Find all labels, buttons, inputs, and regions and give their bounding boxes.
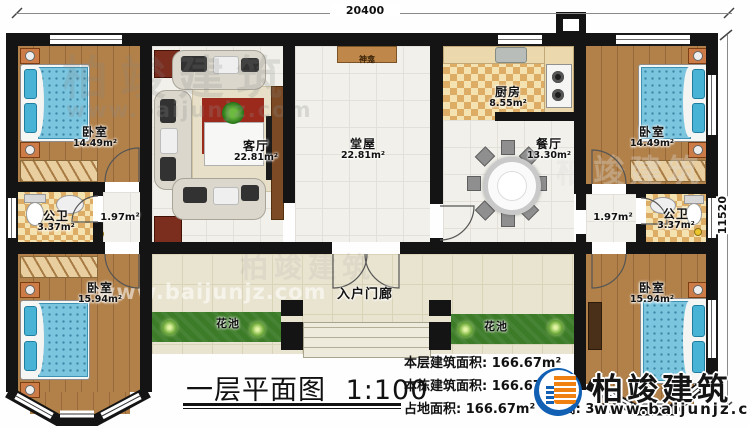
- dimension-ticks: [12, 8, 734, 412]
- plan-title-text: 一层平面图: [186, 375, 326, 406]
- bay-window-bottom-left: [8, 392, 148, 420]
- room-area: 22.81m²: [324, 151, 402, 162]
- room-area: 8.55m²: [478, 99, 538, 110]
- stat-label: 本栋建筑面积:: [404, 379, 487, 394]
- room-area: 22.81m²: [218, 153, 294, 164]
- room-area: 3.37m²: [642, 221, 710, 232]
- room-name: 花池: [200, 318, 256, 330]
- bathroom-left-label: 公卫 3.37m²: [22, 210, 90, 234]
- corridor-left-label: 1.97m²: [96, 212, 144, 223]
- dining-room-label: 餐厅 13.30m²: [516, 138, 582, 162]
- title-underline-thin: [183, 408, 401, 409]
- room-area: 15.94m²: [610, 295, 694, 306]
- room-area: 14.49m²: [56, 139, 134, 150]
- plan-title: 一层平面图 1:100: [186, 368, 406, 407]
- brand-logo-building-icon: [554, 374, 576, 404]
- room-area: 13.30m²: [516, 151, 582, 162]
- room-name: 入户门廊: [310, 288, 420, 303]
- bedroom-top-left-label: 卧室 14.49m²: [56, 126, 134, 150]
- flower-bed-left-label: 花池: [200, 318, 256, 330]
- door-arc: [440, 206, 474, 240]
- brand-logo-icon: [534, 368, 582, 416]
- brand-logo-building-icon-small: [546, 386, 554, 404]
- door-arc: [105, 148, 139, 182]
- stat-label: 占地面积:: [404, 402, 461, 417]
- porch-label: 入户门廊: [310, 288, 420, 303]
- room-name: 花池: [468, 321, 524, 333]
- bedroom-top-right-label: 卧室 14.49m²: [612, 126, 692, 150]
- hall-label: 堂屋 22.81m²: [324, 138, 402, 162]
- bedroom-bottom-right-label: 卧室 15.94m²: [610, 282, 694, 306]
- room-area: 14.49m²: [612, 139, 692, 150]
- bathroom-right-label: 公卫 3.37m²: [642, 208, 710, 232]
- door-arc: [365, 254, 399, 288]
- brand-logo: 柏竣建筑 www.baijunjz.com: [534, 364, 746, 424]
- door-arcs: [72, 148, 667, 288]
- flower-bed-right-label: 花池: [468, 321, 524, 333]
- living-room-label: 客厅 22.81m²: [218, 140, 294, 164]
- bedroom-bottom-left-label: 卧室 15.94m²: [60, 282, 140, 306]
- stat-label: 本层建筑面积:: [404, 356, 487, 371]
- corridor-right-label: 1.97m²: [588, 212, 638, 223]
- door-arc: [592, 150, 626, 184]
- kitchen-label: 厨房 8.55m²: [478, 86, 538, 110]
- title-underline-thick: [183, 403, 401, 406]
- room-area: 15.94m²: [60, 295, 140, 306]
- door-arc: [333, 254, 367, 288]
- dimension-top: 20400: [330, 4, 400, 17]
- room-area: 1.97m²: [588, 212, 638, 223]
- dimension-right: 11520: [716, 196, 729, 234]
- brand-website: www.baijunjz.com: [594, 400, 750, 418]
- floor-plan-page: 柏竣建筑 www.baijunjz.com 柏竣建筑 www.baijunjz.…: [0, 0, 750, 428]
- stat-value: 166.67m²: [466, 402, 535, 417]
- room-area: 1.97m²: [96, 212, 144, 223]
- room-area: 3.37m²: [22, 223, 90, 234]
